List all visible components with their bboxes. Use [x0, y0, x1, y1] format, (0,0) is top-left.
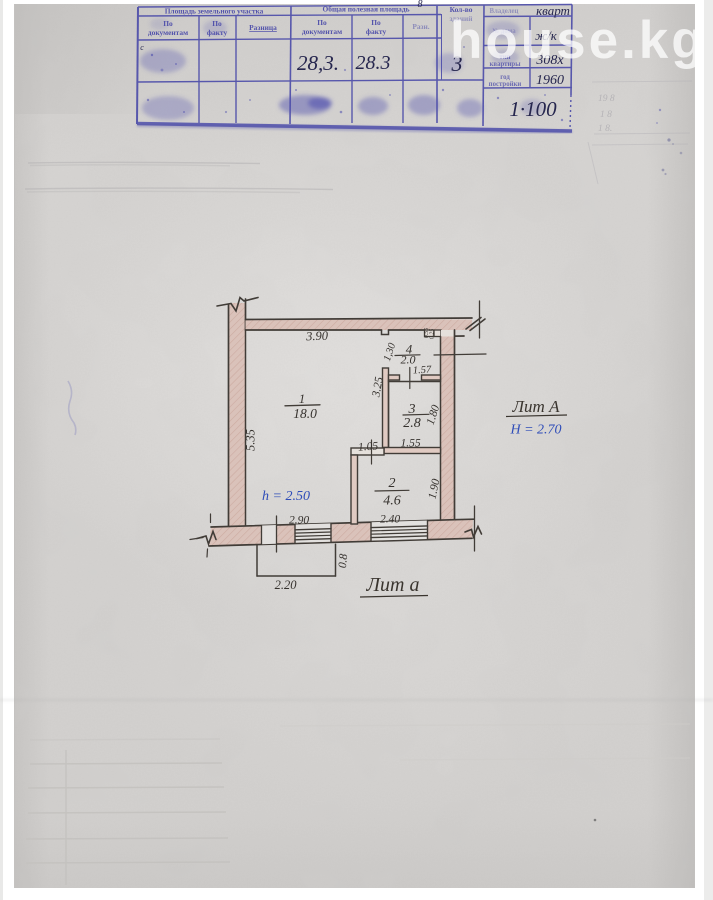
svg-text:факту: факту	[366, 27, 387, 36]
svg-text:19 8: 19 8	[598, 94, 615, 104]
svg-text:18.0: 18.0	[293, 406, 317, 421]
svg-text:h = 2.50: h = 2.50	[262, 489, 310, 504]
svg-text:год: год	[500, 74, 510, 81]
svg-text:2.20: 2.20	[275, 578, 298, 592]
svg-text:1960: 1960	[536, 73, 564, 88]
svg-text:Разн.: Разн.	[412, 22, 429, 31]
svg-text:2: 2	[389, 476, 396, 491]
svg-text:с: с	[140, 43, 144, 52]
svg-text:Разница: Разница	[249, 23, 277, 32]
svg-text:28,3.: 28,3.	[297, 51, 339, 75]
svg-text:По: По	[317, 18, 327, 27]
svg-text:5.35: 5.35	[244, 429, 258, 451]
svg-text:постройки: постройки	[489, 81, 522, 88]
svg-text:0.8: 0.8	[337, 553, 350, 569]
svg-text:1.57: 1.57	[413, 364, 433, 376]
svg-text:1.55: 1.55	[400, 438, 420, 450]
svg-text:документам: документам	[302, 27, 342, 36]
svg-text:2.90: 2.90	[289, 515, 309, 527]
svg-text:3.90: 3.90	[305, 329, 329, 344]
svg-text:Лит А: Лит А	[512, 397, 561, 416]
svg-text:2.8: 2.8	[403, 416, 421, 431]
svg-text:2.40: 2.40	[380, 514, 400, 526]
svg-text:Общая полезная площадь: Общая полезная площадь	[323, 5, 410, 14]
svg-text:8: 8	[418, 0, 423, 10]
svg-text:Площадь земельного участка: Площадь земельного участка	[165, 7, 264, 16]
svg-text:H = 2.70: H = 2.70	[509, 423, 561, 438]
svg-text:4.6: 4.6	[383, 494, 401, 509]
svg-text:1.05: 1.05	[358, 440, 379, 453]
svg-text:1 8.: 1 8.	[598, 124, 612, 134]
svg-text:1 8: 1 8	[600, 110, 612, 120]
svg-text:0.25: 0.25	[430, 329, 436, 340]
svg-text:документам: документам	[148, 28, 188, 37]
svg-text:Лит а: Лит а	[366, 574, 420, 596]
svg-text:1: 1	[299, 392, 305, 406]
svg-text:28.3: 28.3	[356, 52, 391, 74]
svg-text:По: По	[371, 18, 381, 27]
svg-text:house.kg: house.kg	[450, 11, 707, 70]
svg-text:1∙100: 1∙100	[509, 97, 557, 121]
